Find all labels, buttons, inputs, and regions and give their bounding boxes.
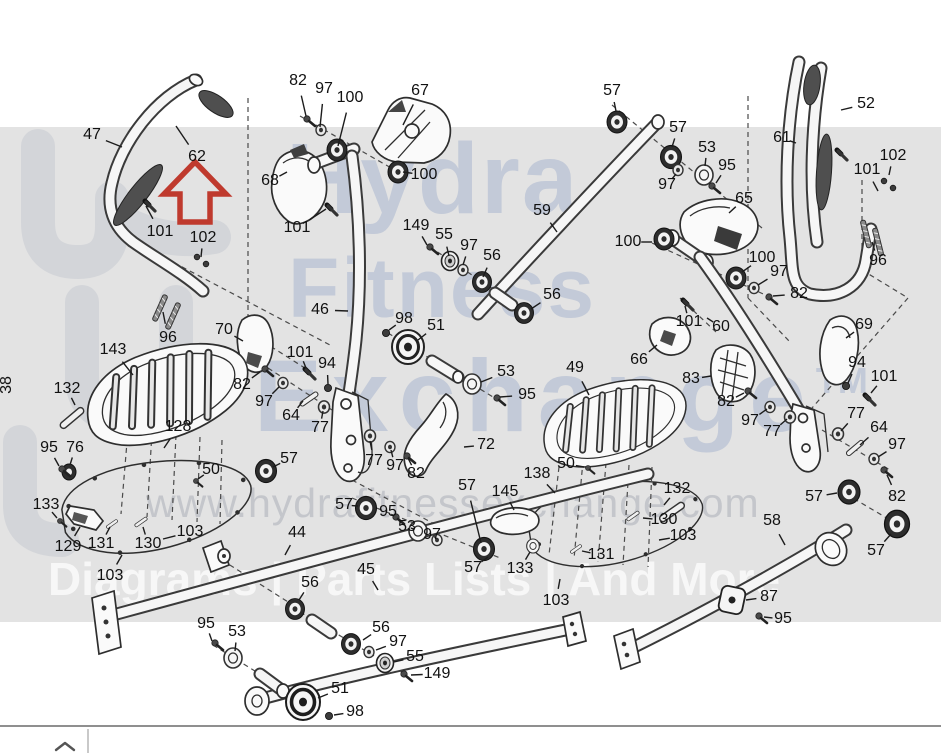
- part-label-97: 97: [741, 413, 759, 429]
- part-label-95: 95: [718, 158, 736, 174]
- part-label-95: 95: [40, 440, 58, 456]
- part-label-95: 95: [518, 387, 536, 403]
- part-label-130: 130: [135, 536, 162, 552]
- part-label-149: 149: [424, 666, 451, 682]
- part-label-47: 47: [83, 127, 101, 143]
- viewer-footer: [0, 725, 941, 753]
- leader-line-56: [363, 635, 371, 640]
- part-label-103: 103: [97, 568, 124, 584]
- part-label-131: 131: [588, 547, 615, 563]
- leader-line-128: [164, 439, 170, 448]
- part-label-101: 101: [871, 369, 898, 385]
- leader-line-100: [742, 266, 751, 272]
- part-label-58: 58: [763, 513, 781, 529]
- parts-diagram-page: Hydra Fitness ExchangeTM www.hydrafitnes…: [0, 0, 941, 753]
- leader-line-103: [659, 538, 670, 540]
- leader-line-95: [764, 617, 773, 618]
- part-label-132: 132: [664, 481, 691, 497]
- leader-line-83: [702, 376, 711, 377]
- leader-line-143: [122, 362, 133, 375]
- leader-line-77: [841, 423, 848, 431]
- part-label-100: 100: [615, 234, 642, 250]
- leader-line-67: [403, 104, 413, 125]
- leader-line-57: [614, 102, 616, 111]
- part-label-83: 83: [682, 371, 700, 387]
- part-label-97: 97: [770, 264, 788, 280]
- part-label-128: 128: [165, 419, 192, 435]
- leader-line-64: [860, 437, 869, 445]
- part-label-101: 101: [147, 224, 174, 240]
- footer-divider: [87, 729, 89, 753]
- leader-line-102: [201, 248, 202, 257]
- leader-line-77: [322, 411, 323, 419]
- leader-line-131: [106, 527, 110, 535]
- part-label-102: 102: [190, 230, 217, 246]
- leader-line-98: [334, 714, 343, 715]
- part-label-66: 66: [630, 352, 648, 368]
- part-label-68: 68: [261, 173, 279, 189]
- leader-line-65: [729, 207, 736, 213]
- part-label-130: 130: [651, 512, 678, 528]
- part-label-77: 77: [847, 406, 865, 422]
- part-label-82: 82: [717, 394, 735, 410]
- leader-line-133: [526, 552, 531, 560]
- leader-line-56: [483, 268, 487, 277]
- part-label-55: 55: [406, 649, 424, 665]
- part-label-44: 44: [288, 525, 306, 541]
- part-label-100: 100: [411, 167, 438, 183]
- part-label-61: 61: [773, 130, 791, 146]
- part-label-103: 103: [670, 528, 697, 544]
- leader-line-149: [411, 675, 423, 676]
- part-label-57: 57: [464, 560, 482, 576]
- part-label-143: 143: [100, 342, 127, 358]
- leader-line-46: [335, 311, 348, 312]
- leader-line-57: [471, 501, 481, 543]
- part-label-52: 52: [857, 96, 875, 112]
- part-label-56: 56: [483, 248, 501, 264]
- leader-line-77: [780, 419, 787, 425]
- part-label-87: 87: [760, 589, 778, 605]
- leader-line-58: [779, 534, 785, 545]
- part-label-57: 57: [867, 543, 885, 559]
- part-label-94: 94: [848, 355, 866, 371]
- part-label-97: 97: [389, 634, 407, 650]
- part-label-97: 97: [386, 458, 404, 474]
- part-label-57: 57: [669, 120, 687, 136]
- leader-line-95: [716, 175, 721, 183]
- part-label-95: 95: [197, 616, 215, 632]
- part-label-51: 51: [427, 318, 445, 334]
- leader-line-101: [303, 361, 306, 368]
- leader-line-101: [871, 386, 877, 393]
- leader-line-97: [878, 452, 887, 457]
- leader-line-53: [705, 158, 706, 166]
- part-label-53: 53: [497, 364, 515, 380]
- leader-line-77: [370, 441, 372, 450]
- leader-line-96: [872, 242, 875, 251]
- part-label-67: 67: [411, 83, 429, 99]
- part-label-97: 97: [888, 437, 906, 453]
- leader-line-95: [209, 633, 212, 641]
- part-label-96: 96: [159, 330, 177, 346]
- leader-line-96: [163, 312, 165, 324]
- part-label-97: 97: [315, 81, 333, 97]
- part-label-131: 131: [88, 536, 115, 552]
- part-label-53: 53: [398, 519, 416, 535]
- part-label-103: 103: [543, 593, 570, 609]
- part-label-51: 51: [331, 681, 349, 697]
- leader-line-102: [889, 166, 891, 175]
- leader-line-76: [70, 457, 72, 465]
- leader-line-56: [531, 303, 541, 309]
- leader-line-97: [376, 646, 386, 650]
- leader-line-50: [576, 466, 584, 467]
- leader-line-87: [746, 599, 756, 600]
- part-label-56: 56: [543, 287, 561, 303]
- part-label-65: 65: [735, 191, 753, 207]
- leader-line-82: [301, 96, 306, 116]
- leader-line-94: [848, 374, 852, 383]
- leader-line-101: [873, 182, 878, 191]
- part-label-45: 45: [357, 562, 375, 578]
- part-label-46: 46: [311, 302, 329, 318]
- part-label-77: 77: [763, 424, 781, 440]
- leader-line-72: [464, 446, 474, 447]
- leader-line-130: [143, 527, 145, 535]
- leader-line-103: [163, 536, 176, 539]
- part-label-97: 97: [658, 177, 676, 193]
- part-label-64: 64: [282, 408, 300, 424]
- part-label-145: 145: [492, 484, 519, 500]
- leader-line-82: [773, 295, 785, 296]
- part-label-97: 97: [255, 394, 273, 410]
- part-label-82: 82: [790, 286, 808, 302]
- part-label-57: 57: [603, 83, 621, 99]
- leader-line-101: [146, 206, 153, 219]
- part-label-82: 82: [888, 489, 906, 505]
- part-label-72: 72: [477, 437, 495, 453]
- leader-line-69: [846, 332, 854, 338]
- part-label-133: 133: [507, 561, 534, 577]
- leader-line-57: [884, 534, 891, 542]
- part-label-57: 57: [458, 478, 476, 494]
- leader-line-68: [279, 172, 287, 176]
- part-label-103: 103: [177, 524, 204, 540]
- part-label-64: 64: [870, 420, 888, 436]
- leader-line-70: [234, 336, 243, 341]
- leader-line-53: [235, 643, 236, 652]
- leader-line-57: [827, 493, 837, 495]
- leader-line-44: [285, 545, 290, 555]
- leader-line-149: [422, 236, 427, 245]
- part-label-50: 50: [557, 456, 575, 472]
- part-label-149: 149: [403, 218, 430, 234]
- part-label-56: 56: [372, 620, 390, 636]
- leader-line-101: [310, 209, 327, 220]
- part-label-97: 97: [423, 527, 441, 543]
- part-label-138: 138: [524, 466, 551, 482]
- part-label-101: 101: [287, 345, 314, 361]
- part-label-98: 98: [346, 704, 364, 720]
- leader-line-95: [55, 458, 60, 466]
- part-label-82: 82: [289, 73, 307, 89]
- leader-line-103: [558, 579, 560, 589]
- part-label-101: 101: [284, 220, 311, 236]
- chevron-up-icon[interactable]: [53, 740, 77, 752]
- part-label-129: 129: [55, 539, 82, 555]
- part-label-76: 76: [66, 440, 84, 456]
- part-label-70: 70: [215, 322, 233, 338]
- leader-line-56: [299, 592, 304, 600]
- part-label-101: 101: [854, 162, 881, 178]
- part-label-98: 98: [395, 311, 413, 327]
- part-label-133: 133: [33, 497, 60, 513]
- leader-line-62: [176, 126, 189, 145]
- part-label-95: 95: [774, 611, 792, 627]
- part-label-38: 38: [0, 376, 15, 394]
- leader-line-97: [272, 387, 279, 394]
- part-label-82: 82: [233, 377, 251, 393]
- leader-line-57: [672, 138, 675, 147]
- part-label-100: 100: [337, 90, 364, 106]
- part-label-55: 55: [435, 227, 453, 243]
- leader-line-97: [320, 104, 322, 127]
- part-label-94: 94: [318, 356, 336, 372]
- part-label-57: 57: [280, 451, 298, 467]
- leader-line-51: [418, 334, 426, 340]
- part-label-95: 95: [379, 504, 397, 520]
- leader-line-132: [664, 498, 670, 505]
- leader-line-95: [500, 396, 512, 397]
- leader-line-66: [649, 345, 657, 352]
- leader-line-145: [510, 502, 514, 510]
- label-leader-lines: [0, 0, 941, 753]
- part-label-53: 53: [228, 624, 246, 640]
- leader-line-53: [481, 378, 492, 383]
- part-label-102: 102: [880, 148, 907, 164]
- leader-line-52: [841, 107, 852, 110]
- part-label-101: 101: [676, 314, 703, 330]
- leader-line-82: [252, 372, 260, 378]
- leader-line-47: [106, 141, 122, 147]
- leader-line-55: [394, 660, 403, 662]
- part-label-132: 132: [54, 381, 81, 397]
- part-label-53: 53: [698, 140, 716, 156]
- part-label-69: 69: [855, 317, 873, 333]
- part-label-97: 97: [460, 238, 478, 254]
- leader-line-100: [338, 113, 346, 146]
- leader-line-97: [758, 279, 768, 285]
- part-label-56: 56: [301, 575, 319, 591]
- part-label-96: 96: [869, 253, 887, 269]
- leader-line-97: [463, 256, 466, 265]
- part-label-77: 77: [365, 453, 383, 469]
- leader-line-51: [318, 694, 328, 698]
- part-label-50: 50: [202, 462, 220, 478]
- part-label-49: 49: [566, 360, 584, 376]
- leader-line-57: [481, 557, 488, 562]
- part-label-60: 60: [712, 319, 730, 335]
- part-label-59: 59: [533, 203, 551, 219]
- part-label-57: 57: [805, 489, 823, 505]
- leader-line-129: [75, 527, 80, 536]
- leader-line-132: [71, 398, 75, 405]
- part-label-77: 77: [311, 420, 329, 436]
- leader-line-55: [447, 247, 449, 256]
- part-label-82: 82: [407, 466, 425, 482]
- leader-line-138: [547, 484, 555, 493]
- leader-line-49: [582, 381, 589, 395]
- leader-line-103: [117, 555, 122, 565]
- leader-line-45: [373, 581, 378, 590]
- leader-line-97: [759, 409, 767, 414]
- leader-line-82: [887, 475, 892, 485]
- leader-line-59: [550, 223, 557, 232]
- leader-line-82: [736, 393, 744, 397]
- part-label-62: 62: [188, 149, 206, 165]
- part-label-57: 57: [335, 497, 353, 513]
